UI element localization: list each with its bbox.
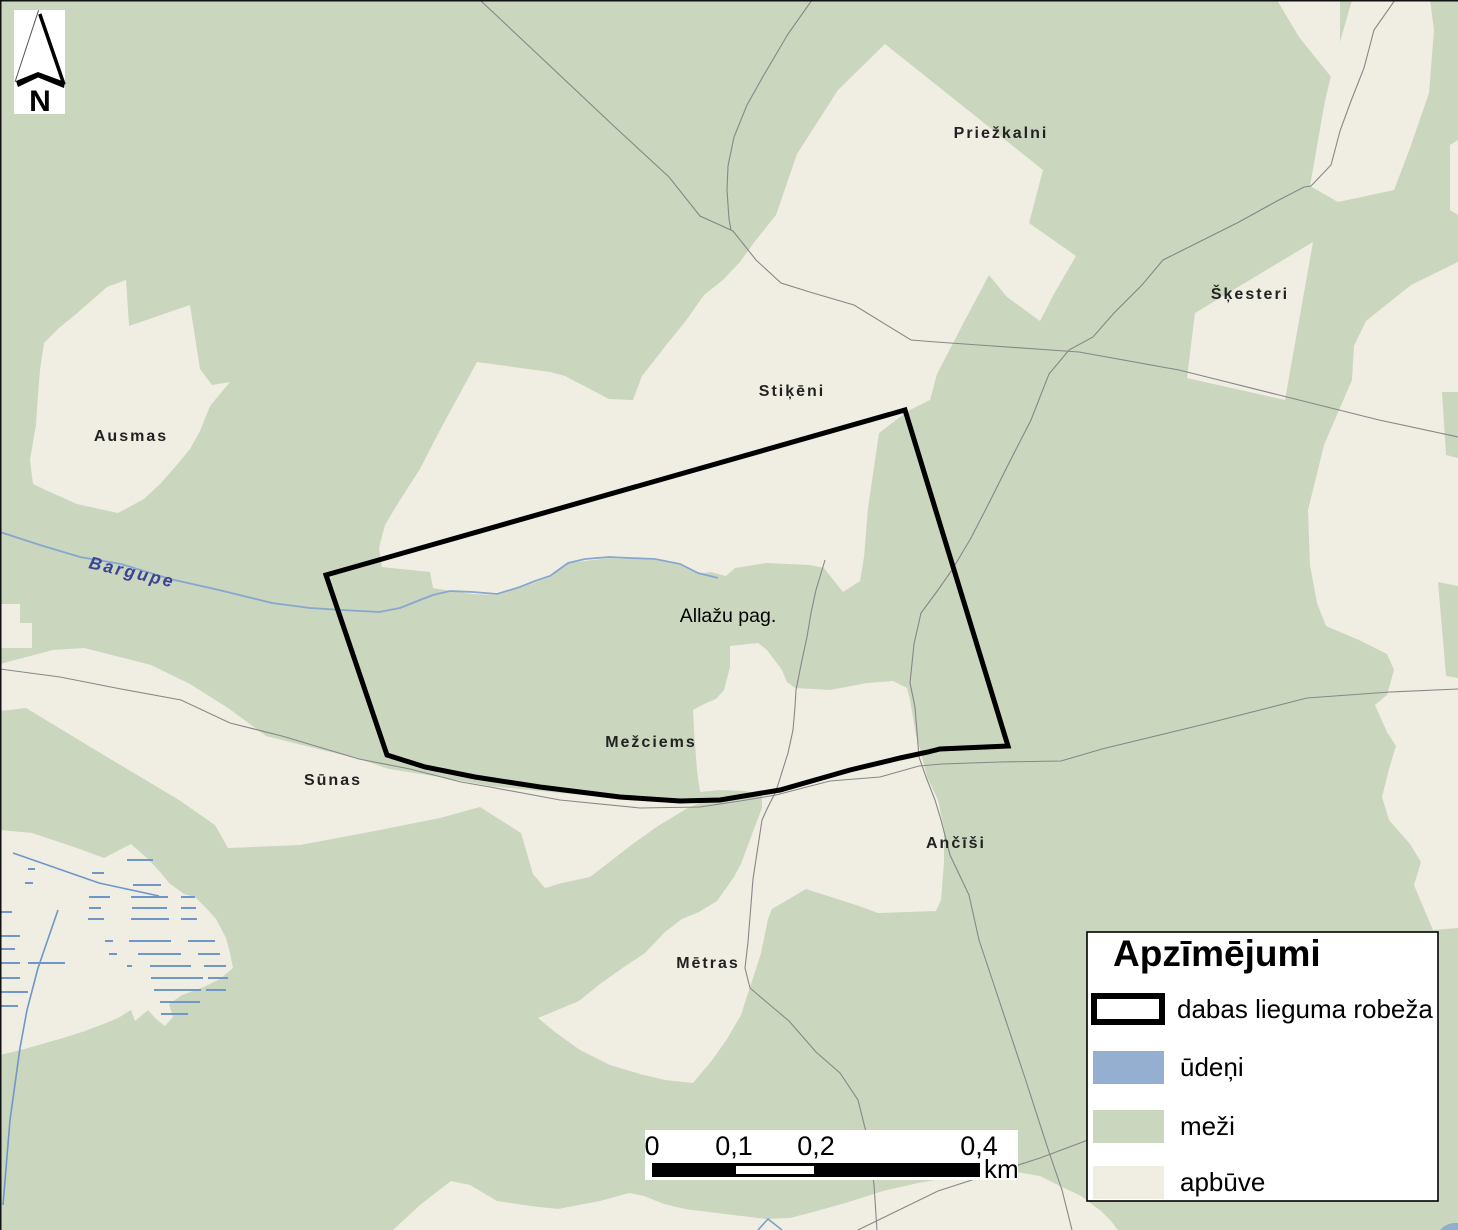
svg-text:Šķesteri: Šķesteri [1211, 284, 1289, 303]
svg-text:Priežkalni: Priežkalni [954, 125, 1049, 142]
svg-text:dabas lieguma robeža: dabas lieguma robeža [1177, 994, 1433, 1024]
svg-text:Stiķēni: Stiķēni [759, 383, 825, 400]
svg-text:0,1: 0,1 [715, 1131, 753, 1161]
svg-text:Mētras: Mētras [676, 955, 740, 972]
svg-text:km: km [984, 1154, 1019, 1184]
svg-text:Apzīmējumi: Apzīmējumi [1113, 933, 1321, 974]
svg-text:0: 0 [644, 1131, 659, 1161]
svg-text:Allažu pag.: Allažu pag. [680, 605, 776, 627]
svg-text:Ausmas: Ausmas [94, 428, 168, 445]
svg-text:ūdeņi: ūdeņi [1180, 1052, 1244, 1082]
svg-text:Ančīši: Ančīši [926, 835, 986, 852]
svg-text:0,2: 0,2 [797, 1131, 835, 1161]
svg-text:N: N [29, 85, 51, 118]
svg-text:apbūve: apbūve [1180, 1167, 1265, 1197]
svg-text:meži: meži [1180, 1111, 1235, 1141]
svg-text:Sūnas: Sūnas [304, 772, 362, 789]
svg-text:Mežciems: Mežciems [605, 734, 697, 751]
